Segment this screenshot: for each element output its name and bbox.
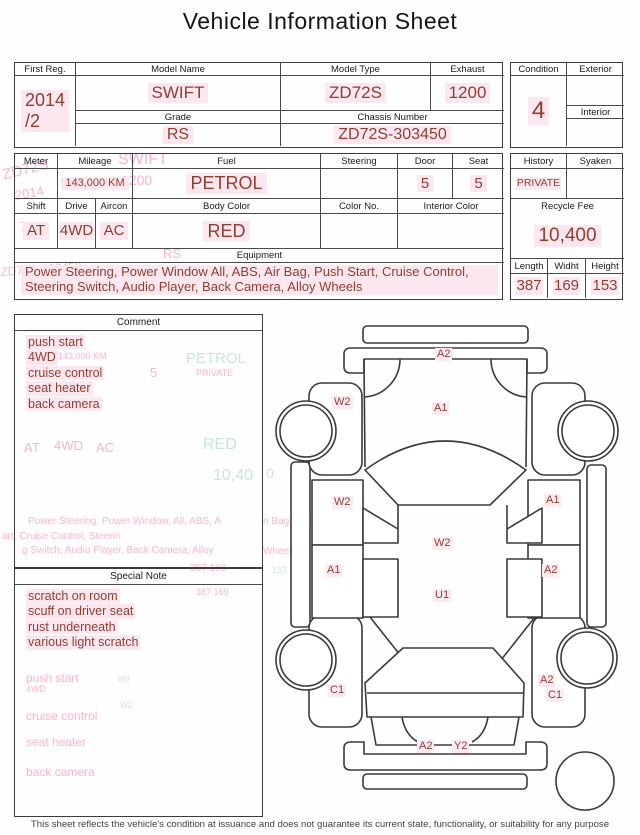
drive-value: 4WD — [58, 214, 96, 249]
special-note-line: rust underneath — [26, 620, 256, 634]
special-note-box: Special Note scratch on roomscuff on dri… — [14, 568, 263, 817]
height-value: 153 — [586, 274, 624, 298]
special-note-line: scuff on driver seat — [26, 604, 256, 618]
equipment-value: Power Steering, Power Window All, ABS, A… — [15, 263, 504, 300]
vehicle-spec-table: Meter Mileage Fuel Steering Door Seat 14… — [14, 153, 503, 300]
fuel-label: Fuel — [133, 154, 321, 169]
steering-label: Steering — [321, 154, 398, 169]
width-text: 169 — [553, 277, 580, 294]
exhaust-label: Exhaust — [431, 63, 504, 76]
drive-label: Drive — [58, 199, 96, 214]
comment-line: push start — [26, 335, 256, 349]
damage-marker-a2: A2 — [538, 674, 555, 687]
condition-table: Condition 4 Exterior Interior — [510, 62, 623, 148]
model-name-value: SWIFT — [76, 76, 281, 111]
condition-text: 4 — [528, 97, 549, 125]
damage-marker-a1: A1 — [325, 564, 342, 577]
vehicle-information-sheet: Vehicle Information Sheet ZD72S201472ZD7… — [0, 0, 640, 835]
damage-marker-w2: W2 — [332, 496, 353, 509]
damage-marker-a2: A2 — [542, 564, 559, 577]
grade-label: Grade — [76, 111, 281, 124]
model-name-text: SWIFT — [148, 83, 209, 103]
exhaust-value: 1200 — [431, 76, 504, 111]
vehicle-identity-table: First Reg. 2014 /2 Model Name SWIFT Mode… — [14, 62, 503, 148]
damage-marker-c1: C1 — [546, 689, 564, 702]
comment-header: Comment — [15, 315, 262, 331]
aircon-text: AC — [100, 222, 129, 239]
seat-value: 5 — [453, 169, 504, 199]
chassis-number-label: Chassis Number — [281, 111, 504, 124]
special-note-line: various light scratch — [26, 635, 256, 649]
history-text: PRIVATE — [516, 177, 561, 189]
steering-value — [321, 169, 398, 199]
door-value: 5 — [398, 169, 453, 199]
length-label: Length — [511, 259, 548, 274]
damage-diagram: A2W2A1W2A1W2A1A2U1C1A2C1A2Y2 — [265, 315, 640, 825]
model-type-text: ZD72S — [325, 83, 386, 103]
history-fee-table: History Syaken PRIVATE Recycle Fee 10,40… — [510, 153, 623, 300]
comment-line: back camera — [26, 397, 256, 411]
meter-label: Meter — [15, 154, 58, 169]
model-type-value: ZD72S — [281, 76, 431, 111]
equipment-label: Equipment — [15, 249, 504, 263]
grade-text: RS — [163, 126, 193, 144]
syaken-value — [567, 169, 624, 199]
syaken-label: Syaken — [567, 154, 624, 169]
disclaimer-text: This sheet reflects the vehicle's condit… — [0, 819, 640, 830]
mileage-label: Mileage — [58, 154, 133, 169]
height-label: Height — [586, 259, 624, 274]
first-reg-label: First Reg. — [15, 63, 76, 76]
color-no-label: Color No. — [321, 199, 398, 214]
height-text: 153 — [591, 277, 618, 294]
body-color-text: RED — [203, 221, 249, 242]
comment-lines: push start4WDcruise controlseat heaterba… — [26, 335, 256, 412]
length-value: 387 — [511, 274, 548, 298]
condition-value: 4 — [511, 76, 567, 146]
door-label: Door — [398, 154, 453, 169]
width-label: Widht — [548, 259, 586, 274]
comment-line: seat heater — [26, 381, 256, 395]
comment-line: 4WD — [26, 350, 256, 364]
body-color-label: Body Color — [133, 199, 321, 214]
damage-marker-a2: A2 — [435, 348, 452, 361]
fuel-text: PETROL — [186, 173, 266, 194]
chassis-number-text: ZD72S-303450 — [334, 126, 451, 144]
first-reg-text: 2014 /2 — [21, 90, 69, 131]
recycle-fee-value: 10,400 — [511, 214, 624, 259]
grade-value: RS — [76, 124, 281, 146]
damage-marker-w2: W2 — [432, 537, 453, 550]
seat-label: Seat — [453, 154, 504, 169]
page-title: Vehicle Information Sheet — [0, 8, 640, 35]
special-note-header: Special Note — [15, 569, 262, 585]
drive-text: 4WD — [59, 222, 94, 239]
body-color-value: RED — [133, 214, 321, 249]
length-text: 387 — [515, 277, 542, 294]
equipment-text: Power Steering, Power Window All, ABS, A… — [21, 265, 498, 295]
interior-color-label: Interior Color — [398, 199, 504, 214]
special-note-lines: scratch on roomscuff on driver seatrust … — [26, 589, 256, 651]
mileage-text: 143,000 KM — [61, 177, 128, 190]
exterior-label: Exterior — [567, 63, 624, 76]
damage-marker-a2: A2 — [417, 740, 434, 753]
damage-marker-y2: Y2 — [452, 740, 469, 753]
interior-value — [567, 119, 624, 146]
model-type-label: Model Type — [281, 63, 431, 76]
fuel-value: PETROL — [133, 169, 321, 199]
history-label: History — [511, 154, 567, 169]
recycle-fee-label: Recycle Fee — [511, 199, 624, 214]
aircon-label: Aircon — [96, 199, 133, 214]
color-no-value — [321, 214, 398, 249]
damage-marker-u1: U1 — [433, 589, 451, 602]
first-reg-value: 2014 /2 — [15, 76, 76, 146]
shift-label: Shift — [15, 199, 58, 214]
interior-label: Interior — [567, 106, 624, 119]
door-text: 5 — [417, 175, 433, 192]
width-value: 169 — [548, 274, 586, 298]
damage-marker-a1: A1 — [544, 494, 561, 507]
model-name-label: Model Name — [76, 63, 281, 76]
mileage-value: 143,000 KM — [58, 169, 133, 199]
damage-marker-a1: A1 — [432, 402, 449, 415]
condition-label: Condition — [511, 63, 567, 76]
comment-box: Comment push start4WDcruise controlseat … — [14, 314, 263, 568]
special-note-line: scratch on room — [26, 589, 256, 603]
seat-text: 5 — [470, 175, 486, 192]
recycle-fee-text: 10,400 — [534, 225, 600, 247]
aircon-value: AC — [96, 214, 133, 249]
shift-value: AT — [15, 214, 58, 249]
exterior-value — [567, 76, 624, 106]
history-value: PRIVATE — [511, 169, 567, 199]
damage-marker-w2: W2 — [332, 396, 353, 409]
shift-text: AT — [23, 222, 49, 239]
chassis-number-value: ZD72S-303450 — [281, 124, 504, 146]
comment-line: cruise control — [26, 366, 256, 380]
exhaust-text: 1200 — [445, 83, 491, 103]
interior-color-value — [398, 214, 504, 249]
damage-marker-c1: C1 — [328, 684, 346, 697]
meter-value — [15, 169, 58, 199]
